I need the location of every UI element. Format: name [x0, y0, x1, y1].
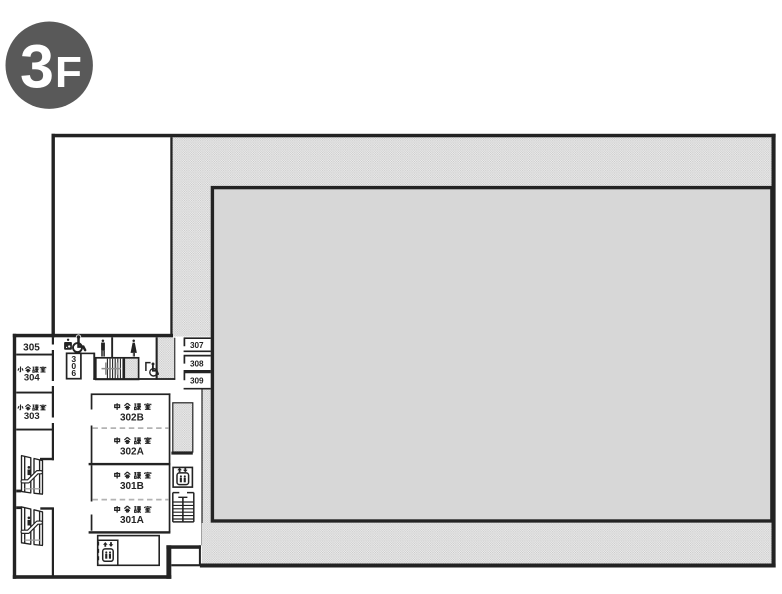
svg-text:302A: 302A [120, 446, 144, 457]
svg-text:6: 6 [71, 368, 76, 378]
svg-text:F: F [55, 48, 82, 97]
svg-text:304: 304 [24, 373, 41, 384]
svg-text:301A: 301A [120, 515, 144, 526]
svg-text:3: 3 [20, 33, 54, 101]
svg-text:303: 303 [24, 411, 40, 422]
svg-text:301B: 301B [120, 481, 144, 492]
svg-text:308: 308 [190, 359, 204, 368]
svg-text:307: 307 [190, 341, 204, 350]
svg-text:309: 309 [190, 377, 204, 386]
svg-text:305: 305 [23, 343, 40, 354]
svg-text:302B: 302B [120, 412, 144, 423]
